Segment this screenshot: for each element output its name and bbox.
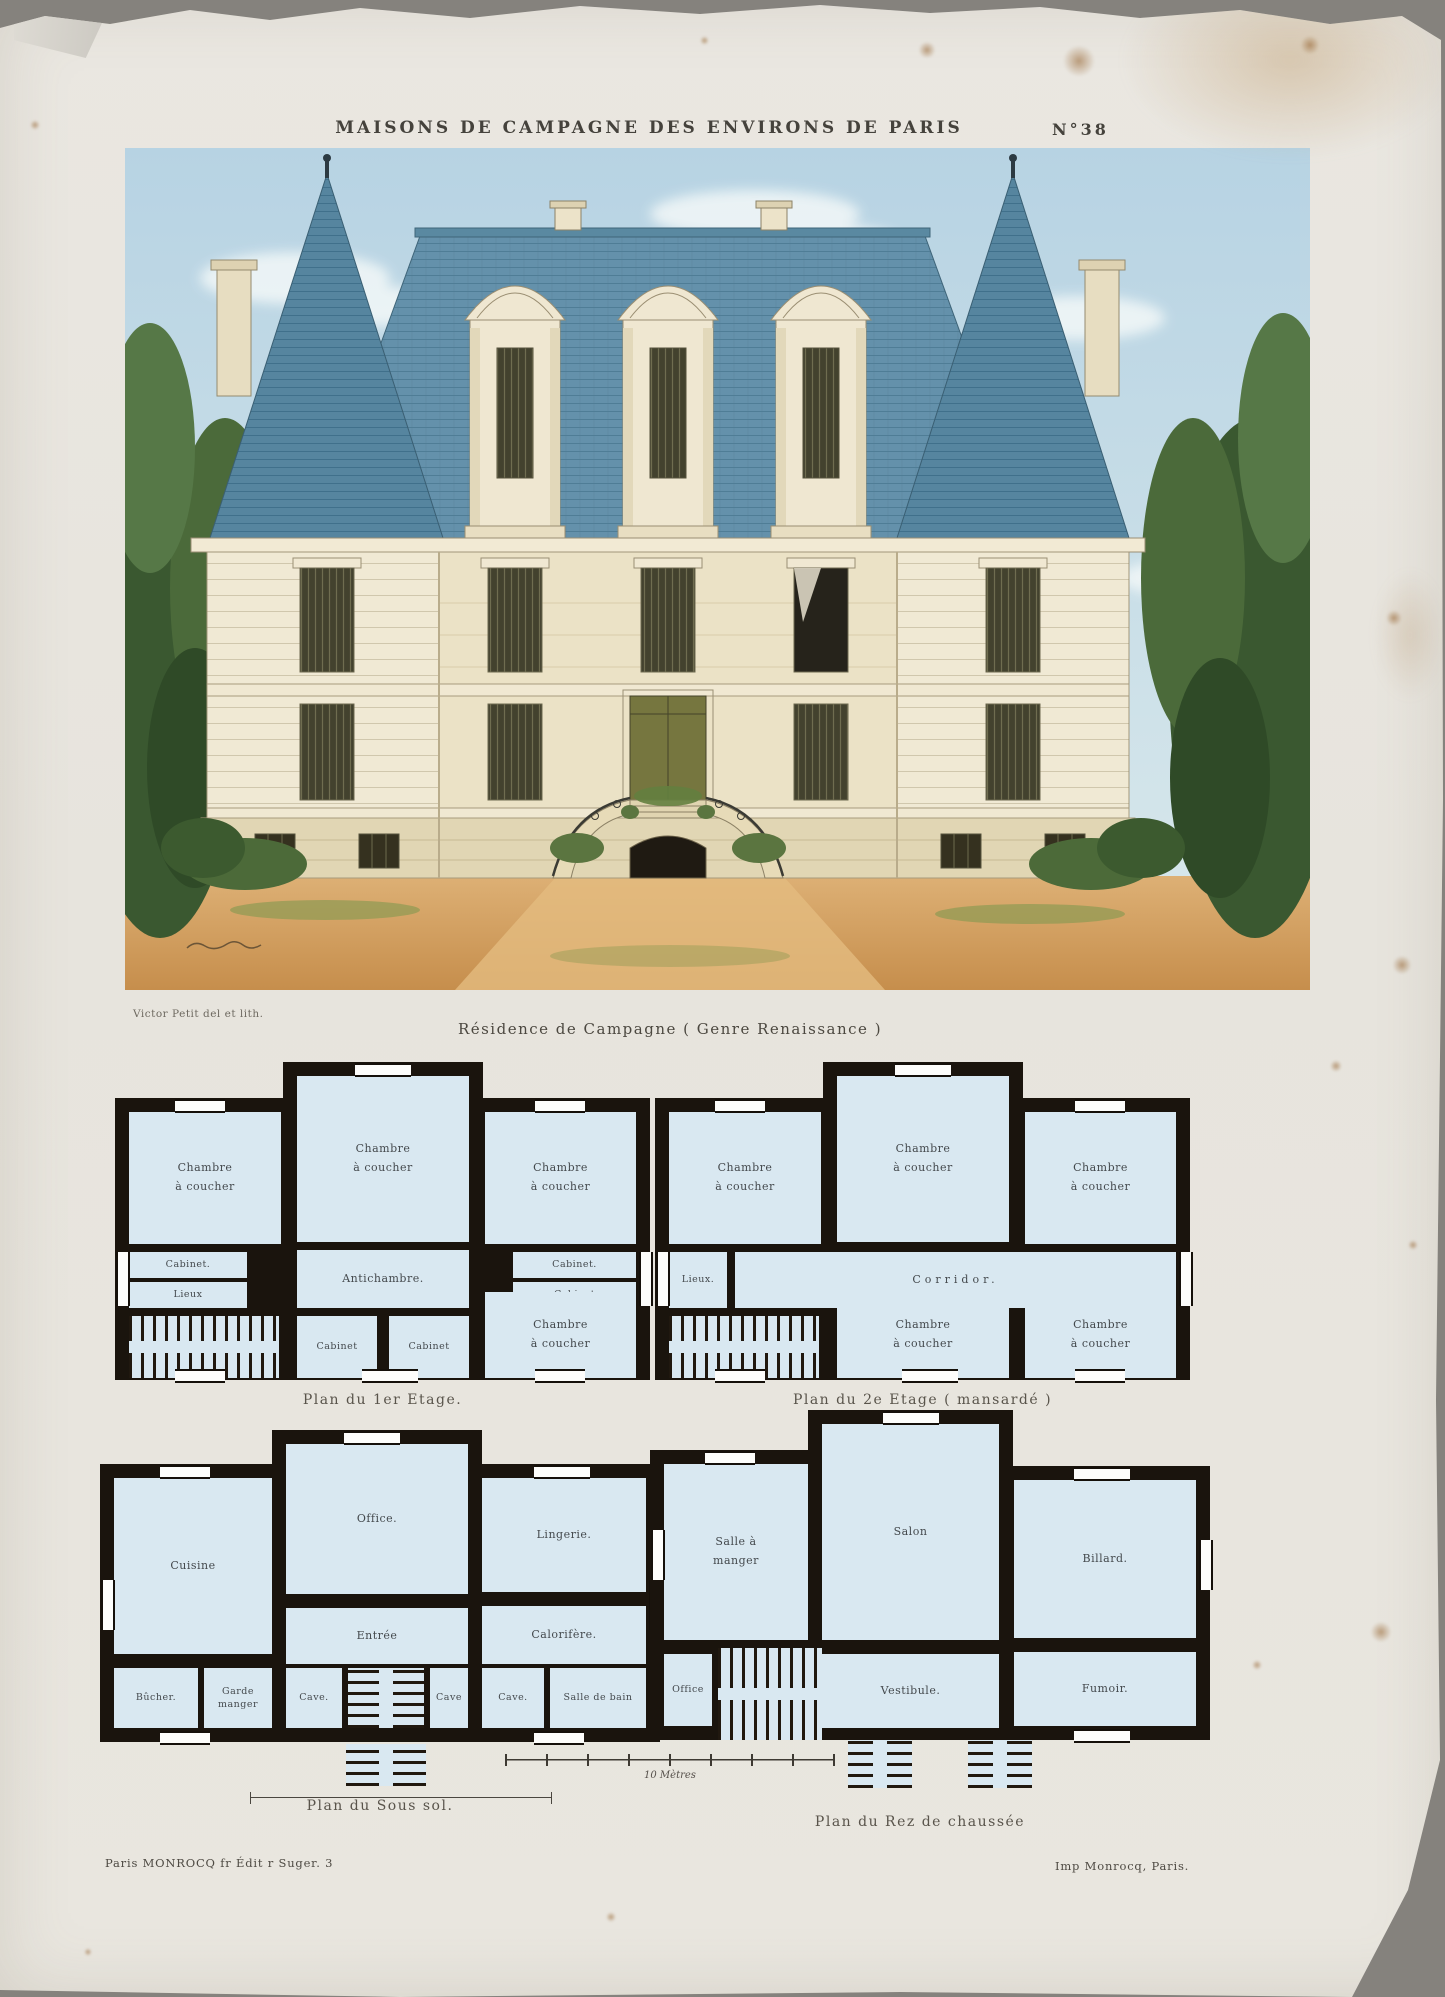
room-label: Calorifère. [531, 1626, 596, 1645]
dormer-left [465, 286, 565, 538]
room-label: Chambre à coucher [174, 1159, 236, 1196]
caption-premier-etage: Plan du 1er Etage. [115, 1392, 650, 1408]
room: Bûcher. [114, 1668, 198, 1728]
window-marker [656, 1252, 670, 1306]
room-label: Salle de bain [563, 1691, 632, 1704]
room: Lingerie. [482, 1478, 646, 1592]
foxing-spot [1408, 1240, 1418, 1250]
foxing-spot [700, 36, 709, 45]
room: Chambre à coucher [297, 1076, 469, 1242]
room: Chambre à coucher [837, 1292, 1009, 1378]
window-marker [1179, 1252, 1193, 1306]
room: Chambre à coucher [1025, 1112, 1176, 1244]
window-marker [651, 1530, 665, 1580]
window-marker [1075, 1099, 1125, 1113]
room: Cabinet. [129, 1252, 247, 1278]
room: Chambre à coucher [485, 1292, 636, 1378]
paper-sheet: MAISONS DE CAMPAGNE DES ENVIRONS DE PARI… [0, 0, 1445, 1997]
room: Cave [430, 1668, 468, 1728]
room-label: Chambre à coucher [714, 1159, 776, 1196]
room: Salle de bain [550, 1668, 646, 1728]
foxing-spot [84, 1948, 92, 1956]
room-label: Chambre à coucher [530, 1159, 592, 1196]
window-marker [715, 1099, 765, 1113]
room: Lieux [129, 1282, 247, 1308]
window-marker [705, 1451, 755, 1465]
elevation-illustration [125, 148, 1310, 990]
room-label: Cabinet [316, 1340, 357, 1353]
window-marker [175, 1099, 225, 1113]
floorplan-premier-etage: Chambre à coucher Chambre à coucher Cham… [115, 1062, 650, 1392]
foxing-spot [1252, 1660, 1262, 1670]
room-label: Cuisine [170, 1557, 215, 1576]
window-marker [116, 1252, 130, 1306]
scale-bar [505, 1754, 835, 1766]
room-label: Cabinet [408, 1340, 449, 1353]
room-label: Office. [357, 1510, 397, 1529]
foxing-spot [1392, 956, 1412, 974]
dormer-center [618, 286, 718, 538]
foxing-spot [1062, 46, 1096, 76]
room: Chambre à coucher [485, 1112, 636, 1244]
room-label: Chambre à coucher [352, 1140, 414, 1177]
room-label: Cabinet. [166, 1258, 211, 1271]
window-marker [101, 1580, 115, 1630]
room-label: Corridor. [912, 1271, 998, 1290]
room: Salle à manger [664, 1464, 808, 1640]
window-marker [1074, 1467, 1130, 1481]
foxing-spot [1330, 1060, 1342, 1072]
room: Office. [286, 1444, 468, 1594]
room-label: Chambre à coucher [1070, 1159, 1132, 1196]
room: Fumoir. [1014, 1652, 1196, 1726]
scale-label: 10 Mètres [505, 1770, 835, 1781]
paper-tear [14, 2, 106, 58]
staircase [718, 1648, 822, 1740]
caption-deuxieme-etage: Plan du 2e Etage ( mansardé ) [655, 1392, 1190, 1408]
room-label: Lieux. [682, 1273, 714, 1286]
room: Cave. [286, 1668, 342, 1728]
room: Billard. [1014, 1480, 1196, 1638]
window-marker [534, 1731, 584, 1745]
room: Salon [822, 1424, 999, 1640]
room: Cabinet. [513, 1252, 636, 1278]
room: Office [664, 1654, 712, 1726]
entry-steps [968, 1740, 1032, 1788]
room: Vestibule. [822, 1654, 999, 1728]
printer-imprint-right: Imp Monrocq, Paris. [1055, 1859, 1189, 1873]
window-marker [175, 1369, 225, 1383]
artist-credit: Victor Petit del et lith. [133, 1008, 263, 1020]
room: Antichambre. [297, 1250, 469, 1308]
room-label: Cave. [498, 1691, 527, 1704]
room-label: Bûcher. [136, 1691, 176, 1704]
room: Chambre à coucher [129, 1112, 281, 1244]
foxing-spot [1370, 1622, 1392, 1642]
room-label: Lieux [174, 1288, 203, 1301]
room: Chambre à coucher [1025, 1292, 1176, 1378]
window-marker [160, 1465, 210, 1479]
room-label: Cabinet. [552, 1258, 597, 1271]
room-label: Garde manger [216, 1685, 260, 1712]
window-marker [895, 1063, 951, 1077]
backdrop: MAISONS DE CAMPAGNE DES ENVIRONS DE PARI… [0, 0, 1445, 1997]
foxing-spot [606, 1912, 616, 1922]
room: Garde manger [204, 1668, 272, 1728]
room: Cave. [482, 1668, 544, 1728]
room-label: Cave. [299, 1691, 328, 1704]
room-label: Vestibule. [881, 1682, 941, 1701]
room-label: Chambre à coucher [1070, 1316, 1132, 1353]
window-marker [160, 1731, 210, 1745]
exterior-stairs [346, 1744, 426, 1786]
room-label: Office [672, 1683, 704, 1696]
elevation-caption: Résidence de Campagne ( Genre Renaissanc… [60, 1020, 1280, 1038]
room-label: Chambre à coucher [892, 1316, 954, 1353]
staircase [348, 1668, 424, 1728]
room: Calorifère. [482, 1606, 646, 1664]
room: Cuisine [114, 1478, 272, 1654]
room-label: Lingerie. [537, 1526, 592, 1545]
window-marker [883, 1411, 939, 1425]
window-marker [535, 1099, 585, 1113]
room: Lieux. [669, 1252, 727, 1308]
roof-ridge [415, 228, 930, 237]
window-marker [715, 1369, 765, 1383]
window-marker [535, 1369, 585, 1383]
room-label: Salle à manger [709, 1533, 763, 1570]
dormer-right [771, 286, 871, 538]
foxing-spot [918, 42, 936, 58]
room: Entrée [286, 1608, 468, 1664]
room-label: Entrée [357, 1627, 398, 1646]
room-label: Fumoir. [1082, 1680, 1128, 1699]
floorplan-deuxieme-etage: Chambre à coucher Chambre à coucher Cham… [655, 1062, 1190, 1392]
paper-stain [1375, 570, 1445, 700]
caption-rez-de-chaussee: Plan du Rez de chaussée [640, 1814, 1200, 1830]
plate-number: N°38 [1052, 120, 1109, 139]
window-marker [1199, 1540, 1213, 1590]
window-marker [355, 1063, 411, 1077]
foxing-spot [1300, 36, 1320, 54]
room: Chambre à coucher [669, 1112, 821, 1244]
room-label: Billard. [1083, 1550, 1128, 1569]
entry-steps [848, 1740, 912, 1788]
cornice [191, 538, 1145, 552]
window-marker [534, 1465, 590, 1479]
window-marker [344, 1431, 400, 1445]
window-marker [1074, 1729, 1130, 1743]
room-label: Chambre à coucher [530, 1316, 592, 1353]
room-label: Salon [894, 1523, 928, 1542]
publisher-imprint-left: Paris MONROCQ fr Édit r Suger. 3 [105, 1856, 333, 1870]
room-label: Cave [436, 1691, 462, 1704]
room-label: Antichambre. [342, 1270, 424, 1289]
window-marker [902, 1369, 958, 1383]
window-marker [639, 1252, 653, 1306]
foxing-spot [1386, 610, 1402, 626]
window-marker [362, 1369, 418, 1383]
caption-sous-sol: Plan du Sous sol. [100, 1798, 660, 1814]
room: Chambre à coucher [837, 1076, 1009, 1242]
window-marker [1075, 1369, 1125, 1383]
room-label: Chambre à coucher [892, 1140, 954, 1177]
